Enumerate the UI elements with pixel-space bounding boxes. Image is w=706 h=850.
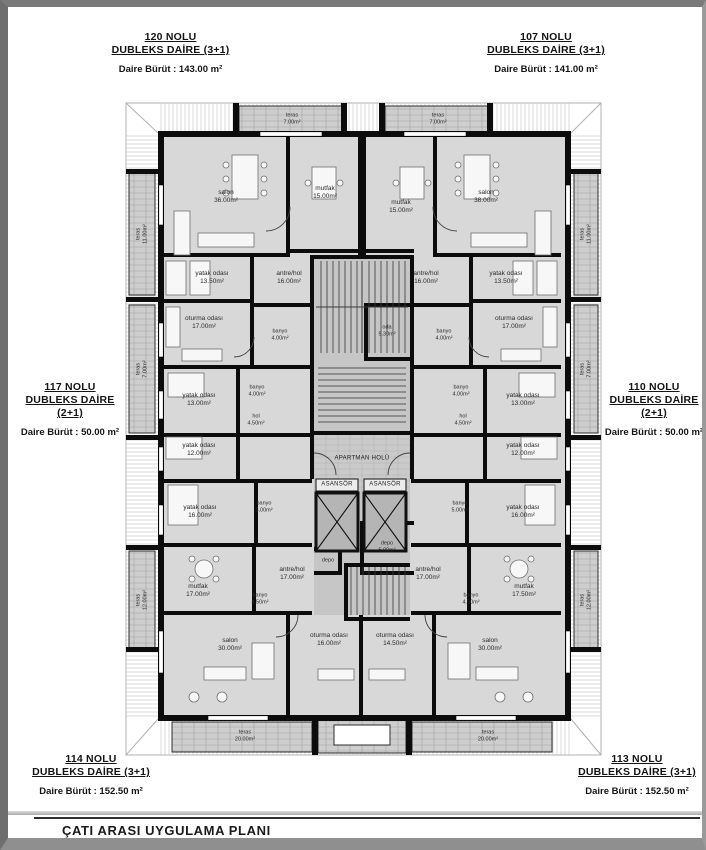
room-label-core-oda: oda5.30m² <box>378 324 395 337</box>
room-label-teras-top-right: teras7.00m² <box>429 112 446 125</box>
room-label-teras-top-left: teras7.00m² <box>283 112 300 125</box>
room-label-antre-120: antre/hol16.00m² <box>276 270 301 286</box>
room-label-yatak16-114: yatak odası16.00m² <box>183 504 216 520</box>
unit-area: Daire Bürüt : 152.50 m² <box>564 786 706 797</box>
room-label-salon-113: salon30.00m² <box>478 637 502 653</box>
unit-area: Daire Bürüt : 152.50 m² <box>16 786 166 797</box>
room-label-teras-bottom-right: teras20.00m² <box>478 729 498 742</box>
room-label-teras-left-7: teras7.00m² <box>135 360 148 377</box>
room-label-antre-113: antre/hol17.00m² <box>415 566 440 582</box>
unit-number: 117 NOLU <box>14 381 126 394</box>
room-label-teras-right-12: teras12.00m² <box>579 590 592 610</box>
drawing-sheet: 120 NOLU DUBLEKS DAİRE (3+1) Daire Bürüt… <box>0 0 706 850</box>
unit-plan-type: (2+1) <box>598 407 706 420</box>
label-apartman-holu: APARTMAN HOLÜ <box>334 455 389 462</box>
unit-type: DUBLEKS DAİRE (3+1) <box>476 44 616 57</box>
unit-label-114: 114 NOLU DUBLEKS DAİRE (3+1) Daire Bürüt… <box>16 753 166 797</box>
room-label-hol-110: hol4.50m² <box>454 413 471 426</box>
unit-area: Daire Bürüt : 141.00 m² <box>476 64 616 75</box>
room-label-teras-bottom-left: teras20.00m² <box>235 729 255 742</box>
room-label-banyo-120: banyo4.00m² <box>271 328 288 341</box>
room-label-hol-117: hol4.50m² <box>247 413 264 426</box>
unit-type: DUBLEKS DAİRE (3+1) <box>564 766 706 779</box>
room-label-mutfak-114: mutfak17.00m² <box>186 583 210 599</box>
room-label-yatak13-110: yatak odası13.00m² <box>506 392 539 408</box>
room-label-antre-114: antre/hol17.00m² <box>279 566 304 582</box>
unit-number: 120 NOLU <box>103 31 238 44</box>
room-label-depo: depo5.00m² <box>378 540 395 553</box>
room-label-banyo-110: banyo4.00m² <box>452 384 469 397</box>
room-label-banyo45-114: banyo4.50m² <box>251 592 268 605</box>
unit-type: DUBLEKS DAİRE <box>14 394 126 407</box>
room-label-depo-small: depo <box>322 558 334 565</box>
unit-label-113: 113 NOLU DUBLEKS DAİRE (3+1) Daire Bürüt… <box>564 753 706 797</box>
drawing-title: ÇATI ARASI UYGULAMA PLANI <box>62 823 271 838</box>
room-label-teras-left-11: teras11.00m² <box>135 224 148 244</box>
room-label-banyo-117: banyo4.00m² <box>248 384 265 397</box>
room-label-mutfak-120: mutfak15.00m² <box>313 185 337 201</box>
unit-plan-type: (2+1) <box>14 407 126 420</box>
room-label-yatak13-117: yatak odası13.00m² <box>182 392 215 408</box>
room-label-mutfak-113: mutfak17.50m² <box>512 583 536 599</box>
unit-number: 110 NOLU <box>598 381 706 394</box>
room-label-salon-120: salon36.00m² <box>214 189 238 205</box>
room-label-teras-right-7: teras7.00m² <box>579 360 592 377</box>
room-label-oturma-120: oturma odası17.00m² <box>185 315 223 331</box>
unit-type: DUBLEKS DAİRE (3+1) <box>16 766 166 779</box>
unit-area: Daire Bürüt : 143.00 m² <box>103 64 238 75</box>
room-label-salon-114: salon30.00m² <box>218 637 242 653</box>
unit-area: Daire Bürüt : 50.00 m² <box>598 427 706 438</box>
unit-type: DUBLEKS DAİRE <box>598 394 706 407</box>
room-label-antre-107: antre/hol16.00m² <box>413 270 438 286</box>
room-label-banyo45-113: banyo4.50m² <box>462 592 479 605</box>
unit-number: 107 NOLU <box>476 31 616 44</box>
room-label-salon-107: salon38.00m² <box>474 189 498 205</box>
room-label-yatak16-113: yatak odası16.00m² <box>506 504 539 520</box>
label-asansor-left: ASANSÖR <box>321 481 352 488</box>
unit-number: 113 NOLU <box>564 753 706 766</box>
unit-type: DUBLEKS DAİRE (3+1) <box>103 44 238 57</box>
unit-label-120: 120 NOLU DUBLEKS DAİRE (3+1) Daire Bürüt… <box>103 31 238 75</box>
room-label-yatak-120: yatak odası13.50m² <box>195 270 228 286</box>
room-label-teras-left-12: teras12.00m² <box>135 590 148 610</box>
unit-area: Daire Bürüt : 50.00 m² <box>14 427 126 438</box>
unit-label-110: 110 NOLU DUBLEKS DAİRE (2+1) Daire Bürüt… <box>598 381 706 438</box>
room-label-teras-right-11: teras11.00m² <box>579 224 592 244</box>
title-divider-top <box>8 811 702 815</box>
room-label-yatak12-117: yatak odası12.00m² <box>182 442 215 458</box>
room-label-yatak-107: yatak odası13.50m² <box>489 270 522 286</box>
room-label-mutfak-107: mutfak15.00m² <box>389 199 413 215</box>
unit-label-107: 107 NOLU DUBLEKS DAİRE (3+1) Daire Bürüt… <box>476 31 616 75</box>
room-label-banyo5-113: banyo5.00m² <box>451 500 468 513</box>
room-label-oturma-114: oturma odası16.00m² <box>310 632 348 648</box>
room-label-oturma-113: oturma odası14.50m² <box>376 632 414 648</box>
title-bar: ÇATI ARASI UYGULAMA PLANI <box>34 817 700 844</box>
room-label-yatak12-110: yatak odası12.00m² <box>506 442 539 458</box>
unit-number: 114 NOLU <box>16 753 166 766</box>
room-label-banyo-107: banyo4.00m² <box>435 328 452 341</box>
room-label-banyo5-114: banyo5.00m² <box>255 500 272 513</box>
room-label-oturma-107: oturma odası17.00m² <box>495 315 533 331</box>
unit-label-117: 117 NOLU DUBLEKS DAİRE (2+1) Daire Bürüt… <box>14 381 126 438</box>
label-asansor-right: ASANSÖR <box>369 481 400 488</box>
